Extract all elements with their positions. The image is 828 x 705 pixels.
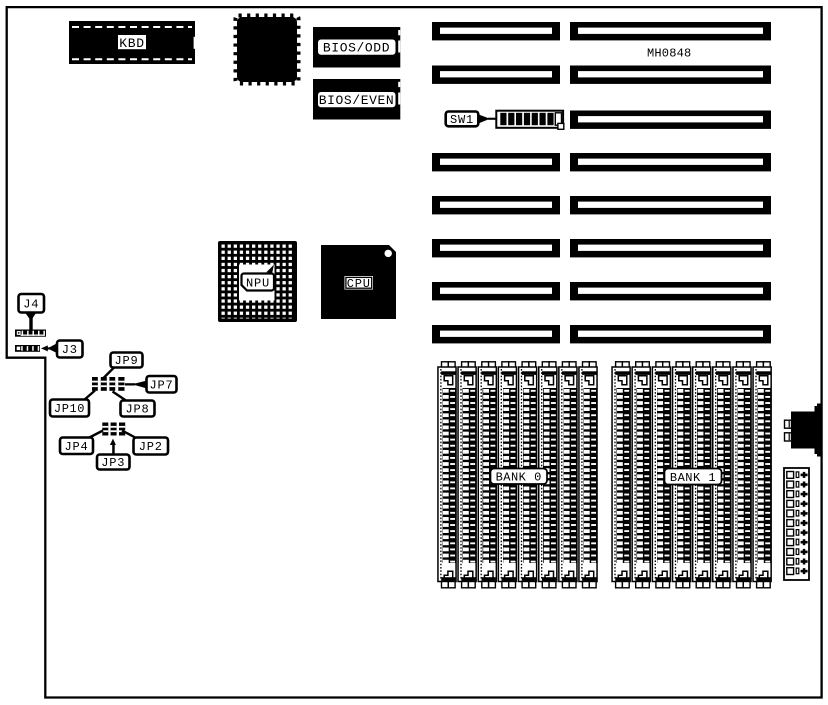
svg-text:NPU: NPU — [246, 277, 270, 291]
svg-text:JP2: JP2 — [139, 440, 163, 454]
svg-text:BANK 1: BANK 1 — [670, 471, 716, 485]
svg-text:JP9: JP9 — [114, 354, 138, 368]
svg-text:SW1: SW1 — [450, 113, 474, 127]
svg-text:BANK 0: BANK 0 — [496, 471, 542, 485]
svg-text:JP4: JP4 — [64, 440, 88, 454]
svg-text:J3: J3 — [62, 343, 78, 357]
svg-text:JP3: JP3 — [101, 456, 125, 470]
svg-text:CPU: CPU — [347, 277, 371, 291]
svg-text:MH0848: MH0848 — [647, 47, 691, 61]
svg-text:BIOS/EVEN: BIOS/EVEN — [319, 93, 395, 108]
svg-text:KBD: KBD — [119, 36, 145, 51]
svg-text:JP10: JP10 — [54, 402, 85, 416]
svg-text:JP7: JP7 — [149, 378, 173, 392]
svg-text:BIOS/ODD: BIOS/ODD — [323, 41, 390, 56]
svg-text:JP8: JP8 — [125, 403, 149, 417]
svg-text:J4: J4 — [23, 297, 39, 311]
